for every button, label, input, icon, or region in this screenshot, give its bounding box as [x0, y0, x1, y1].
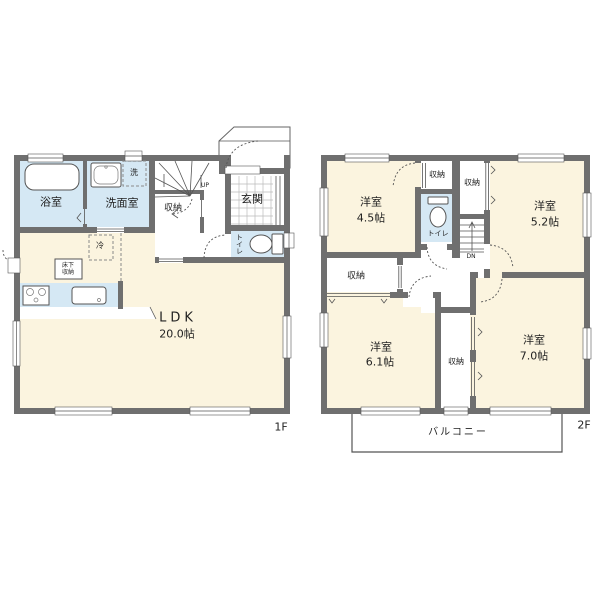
stove-icon [23, 286, 49, 305]
label-room61: 洋室 [370, 342, 392, 353]
label-closet-a: 収納 [429, 171, 445, 179]
label-room70: 洋室 [523, 335, 545, 346]
label-closet-c: 収納 [347, 273, 365, 282]
label-closet-1f: 収納 [164, 205, 182, 214]
closet-b-room [460, 161, 484, 214]
floorplan-graphic [0, 0, 600, 599]
label-room45: 洋室 [360, 197, 382, 208]
label-laundry: 洗 [130, 169, 138, 177]
label-room52-size: 5.2帖 [531, 217, 560, 228]
toilet-icon-1f [250, 234, 283, 254]
label-room70-size: 7.0帖 [520, 351, 549, 362]
bathtub-icon [25, 164, 79, 190]
label-room52: 洋室 [534, 201, 556, 212]
label-closet-b: 収納 [464, 179, 480, 187]
label-ldk-size: 20.0帖 [159, 329, 195, 340]
kitchen-sink-icon [72, 287, 106, 304]
floor-label-2f: 2F [577, 420, 590, 431]
label-stairs-dn: DN [466, 254, 475, 260]
label-toilet-2f: トイレ [428, 231, 449, 238]
floorplan-1f [3, 127, 294, 415]
label-ldk: LDK [159, 312, 197, 325]
label-bath: 浴室 [40, 197, 62, 208]
label-balcony: バルコニー [428, 428, 488, 438]
label-room45-size: 4.5帖 [357, 213, 386, 224]
label-washroom: 洗面室 [106, 198, 139, 209]
label-stairs-up: UP [201, 183, 209, 189]
label-underfloor-2: 収納 [62, 270, 74, 276]
floor-label-1f: 1F [274, 422, 287, 433]
label-toilet-1f: トイレ [236, 234, 243, 255]
label-entrance: 玄関 [241, 194, 263, 205]
washbasin-icon [91, 163, 121, 187]
label-fridge: 冷 [96, 242, 104, 250]
label-room61-size: 6.1帖 [366, 357, 395, 368]
label-closet-d: 収納 [448, 358, 464, 366]
kitchen-counter-front [20, 307, 156, 319]
floorplan-page: 浴室 洗面室 洗 収納 UP 玄関 トイレ 冷 床下 収納 LDK 20.0帖 … [0, 0, 600, 599]
toilet-icon-2f [428, 197, 448, 227]
